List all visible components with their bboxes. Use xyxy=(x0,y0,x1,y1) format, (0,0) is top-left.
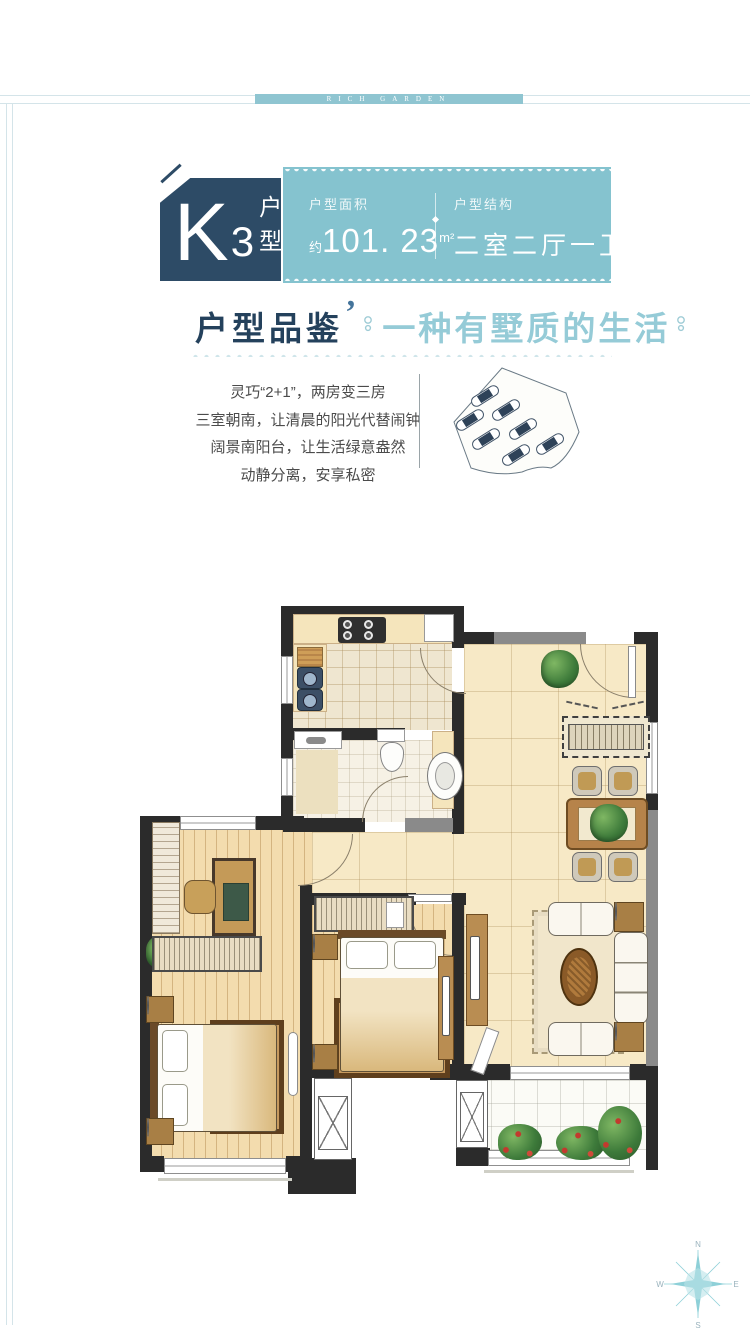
compass-east-label: E xyxy=(733,1280,738,1289)
burner-icon xyxy=(343,631,352,640)
wall-mirror xyxy=(288,1032,298,1096)
entry-door-leaf xyxy=(628,646,636,698)
side-table xyxy=(614,902,644,932)
washing-machine xyxy=(427,752,463,800)
nightstand xyxy=(312,1044,338,1070)
nightstand xyxy=(146,1118,174,1145)
wall-segment xyxy=(300,885,312,1163)
cutting-board xyxy=(297,647,323,667)
wall-segment xyxy=(464,632,494,644)
window-sill-line xyxy=(484,1170,634,1173)
pillow xyxy=(162,1030,188,1072)
shaft-x-symbol xyxy=(460,1092,484,1142)
side-table xyxy=(614,1022,644,1052)
faucet-icon xyxy=(306,737,326,744)
toilet-tank xyxy=(377,729,405,742)
wall-segment xyxy=(281,740,293,758)
master-bedroom-window-bottom xyxy=(164,1158,286,1174)
chair-seat xyxy=(578,858,596,876)
balcony-sliding-door xyxy=(510,1066,630,1080)
bathroom-window xyxy=(281,758,293,796)
chair-seat xyxy=(614,858,632,876)
coffee-table xyxy=(560,948,598,1006)
wall-gray-segment xyxy=(494,632,586,644)
second-bed xyxy=(338,930,446,1072)
loveseat xyxy=(548,1022,614,1056)
washer-drum xyxy=(435,762,455,790)
nightstand xyxy=(146,996,174,1023)
chair-seat xyxy=(614,772,632,790)
master-bedroom-window-top xyxy=(180,816,256,830)
desk xyxy=(212,858,256,936)
wall-segment xyxy=(140,1156,164,1172)
shaft-x-symbol xyxy=(318,1096,348,1150)
bath-mat xyxy=(296,750,338,814)
sink-bowl xyxy=(303,694,317,708)
wall-segment xyxy=(288,1158,356,1194)
balcony-plant xyxy=(556,1126,604,1160)
desk-chair xyxy=(184,880,216,914)
wall-gray-segment xyxy=(405,818,453,832)
kitchen-window xyxy=(281,656,293,704)
floor-plan xyxy=(0,0,750,1334)
lamp-icon xyxy=(313,1044,315,1063)
fridge xyxy=(424,614,454,642)
compass-north-label: N xyxy=(695,1240,701,1249)
dining-chair xyxy=(572,852,602,882)
loveseat xyxy=(548,902,614,936)
desk-blotter xyxy=(223,883,249,921)
bedroom-tv xyxy=(442,976,450,1036)
kitchen-sink xyxy=(297,689,323,711)
wardrobe-mirror-door xyxy=(386,902,404,928)
lamp-icon xyxy=(615,1022,617,1041)
dining-chair xyxy=(608,766,638,796)
compass-south-label: S xyxy=(695,1321,700,1330)
tv xyxy=(470,936,480,1000)
stove xyxy=(338,617,386,643)
burner-icon xyxy=(364,620,373,629)
burner-icon xyxy=(343,620,352,629)
lamp-icon xyxy=(615,902,617,921)
pillow xyxy=(394,941,436,969)
burner-icon xyxy=(364,631,373,640)
nightstand xyxy=(312,934,338,960)
window-sill-line xyxy=(158,1178,292,1181)
coffee-table-top xyxy=(567,957,591,997)
wall-segment xyxy=(452,893,466,905)
pillow xyxy=(346,941,388,969)
sink-bowl xyxy=(303,672,317,686)
wall-segment xyxy=(646,632,658,722)
entry-cabinet-hatch xyxy=(568,724,644,750)
lamp-icon xyxy=(313,934,315,953)
balcony-plant xyxy=(598,1106,642,1160)
main-sofa xyxy=(614,932,648,1024)
second-bedroom-door-leaf xyxy=(408,894,452,902)
dining-chair xyxy=(608,852,638,882)
wall-segment xyxy=(456,1148,490,1166)
compass-west-label: W xyxy=(656,1280,664,1289)
compass-rose: N E S W xyxy=(656,1238,740,1330)
chair-seat xyxy=(578,772,596,790)
wardrobe xyxy=(152,936,262,972)
closet xyxy=(152,822,180,934)
wall-segment xyxy=(630,1064,658,1080)
kitchen-sink xyxy=(297,667,323,689)
wall-segment xyxy=(256,816,304,830)
dining-chair xyxy=(572,766,602,796)
lamp-icon xyxy=(147,996,149,1015)
wall-segment xyxy=(281,606,293,656)
lamp-icon xyxy=(147,1118,149,1137)
